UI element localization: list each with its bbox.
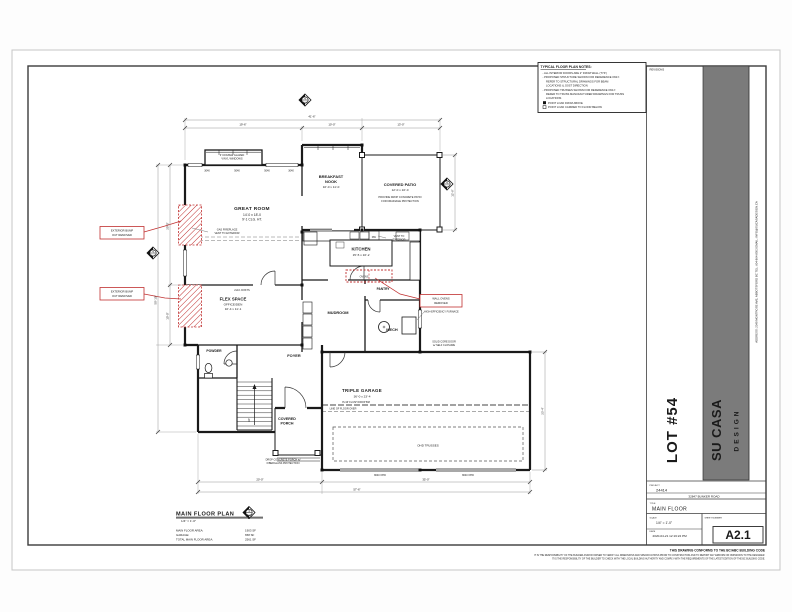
label-plan-rooms-flex_space-size: 10'-4 x 11'-1 — [225, 307, 242, 311]
label-plan-notes-floor_over: LINE OF FLOOR OVER — [330, 407, 357, 410]
label-plan-plan_title-rows-0-label: MAIN FLOOR AREA: — [176, 529, 204, 533]
label-title_block-sheet-value: A2.1 — [725, 528, 751, 542]
label-title_block-scale-value: 1/4" = 1'-0" — [656, 521, 673, 525]
label-plan-notes-fireplace_line2: VENT TO EXTERIOR — [214, 231, 239, 235]
label-plan-marker_ref-sheet: A4.0 — [247, 514, 251, 517]
label-title_block-lot_label: LOT #54 — [664, 397, 681, 463]
label-title_block-brand-sub: DESIGN — [734, 409, 741, 452]
label-plan-notes-joists: 2x10 JOISTS — [234, 288, 250, 292]
label-notes_box-lines-1: - PROPOSED STRUCTURE SHOWN FOR REFERENCE… — [543, 75, 620, 79]
label-plan-rooms-covered_porch-name_line1: COVERED — [278, 417, 296, 421]
point-load-filled-icon — [543, 101, 546, 104]
label-plan-marker_ref-sheet: A4.0 — [445, 185, 449, 188]
label-plan-rooms-stairs-label: UP — [247, 418, 251, 422]
label-plan-garage_door_tags-1: 8040 OHD — [462, 474, 474, 477]
label-title_block-project-value: 24414 — [656, 488, 668, 493]
label-plan-window_tags-0: 3040 — [204, 170, 210, 173]
bump-out-removed-hatch-1 — [179, 205, 202, 245]
label-plan-window_tags-2: 5040 — [264, 170, 270, 173]
label-title_block-conformance_note: THIS DRAWING CONFORMS TO THE BC/ABC BUIL… — [670, 549, 765, 553]
label-plan-red_annotations-ovens_line2: REMOVED — [434, 301, 448, 305]
bump-out-removed-hatch-2 — [179, 285, 202, 327]
architectural-sheet-stage: REVISIONSLOT #54SU CASADESIGNADDRESS: 23… — [0, 0, 792, 612]
label-plan-red_annotations-bump2_line1: EXTERIOR BUMP — [111, 290, 133, 294]
label-plan-notes-drop_beam: 8'x16' FLUSH DROP BM — [342, 401, 370, 404]
label-plan-rooms-breakfast_nook-size: 10'-0 x 11'-0 — [323, 185, 340, 189]
label-plan-notes-windows_line2: VINYL WINDOWS — [221, 157, 243, 161]
label-title_block-disclaimer_lines-1: IT IS THE RESPONSIBILITY OF THE BUILDER … — [552, 558, 766, 561]
label-plan-window_tags-1: 5040 — [234, 170, 240, 173]
label-plan-rooms-kitchen-name: KITCHEN — [351, 247, 370, 252]
sink-icon — [226, 360, 232, 366]
label-plan-notes-fireplace_line1: GAS FIREPLACE — [217, 228, 238, 232]
label-plan-rooms-powder-name: POWDER — [206, 349, 222, 353]
label-notes_box-title: TYPICAL FLOOR PLAN NOTES: — [541, 65, 592, 69]
label-plan-red_annotations-bump1_line2: OUT REMOVED — [112, 233, 132, 237]
label-plan-red_annotations-ovens_line1: WALL OVENS — [432, 297, 449, 301]
label-notes_box-lines-2: REFER TO STRUCTURAL DRAWINGS FOR BEAM — [546, 79, 609, 83]
label-notes_box-lines-3: LOCATIONS & JOIST DIRECTION — [546, 84, 588, 88]
floor-plan-sheet: REVISIONSLOT #54SU CASADESIGNADDRESS: 23… — [0, 0, 792, 612]
label-plan-notes-solid_core_line2: w/ SELF CLOSURE — [433, 344, 456, 347]
label-title_block-date-value: 2020-04-21 12:16:22 PM — [653, 534, 688, 538]
label-title_block-date-label: DATE — [650, 530, 656, 533]
label-plan-red_annotations-bump2_line2: OUT REMOVED — [112, 294, 132, 298]
label-plan-plan_title-scale: 1/4" = 1'-0" — [181, 519, 196, 523]
label-plan-marker_ref-sheet: A4.0 — [303, 101, 307, 104]
label-plan-marker_ref-sheet: A4.0 — [151, 254, 155, 257]
label-plan-red_annotations-bump1_line1: EXTERIOR BUMP — [111, 229, 133, 233]
label-plan-rooms-great_room-size: 14'-0 x 18'-0 — [243, 213, 261, 217]
label-plan-notes-solid_core_line1: SOLID CORE DOOR — [432, 341, 456, 344]
label-title_block-title-label: TITLE — [650, 503, 656, 505]
label-plan-rooms-pantry-name: PANTRY — [377, 287, 391, 291]
label-plan-plan_title-rows-0-value: 1903 SF — [245, 529, 256, 533]
label-plan-dimensions-top_3: 13'-0" — [397, 123, 404, 127]
label-plan-dimensions-bottom_1: 20'-0" — [256, 478, 263, 482]
label-notes_box-lines-6: LOCATIONS — [546, 96, 562, 100]
label-plan-rooms-foyer-name: FOYER — [287, 353, 301, 358]
label-plan-dimensions-top_overall: 41'-6" — [308, 115, 315, 119]
toilet-icon — [205, 363, 212, 372]
label-plan-plan_title-rows-2-value: 2561 SF — [245, 538, 256, 542]
label-plan-rooms-covered_patio-note_line1: PROVIDE DROP CONCRETE PATIO — [378, 195, 421, 199]
label-plan-plan_title-rows-1-value: 658 SF — [245, 533, 255, 537]
label-plan-dimensions-bottom_2: 35'-0" — [422, 478, 429, 482]
label-plan-rooms-mech-name: MECH — [386, 327, 398, 332]
label-title_block-site_address: 32847 BUNKER ROAD — [688, 495, 720, 499]
label-plan-dimensions-left_overall: 50'-10" — [154, 296, 158, 305]
label-plan-rooms-covered_patio-name: COVERED PATIO — [384, 182, 417, 187]
label-plan-notes-ohd_trusses: OHD TRUSSES — [417, 444, 439, 448]
label-plan-rooms-flex_space-name: FLEX SPACE — [220, 297, 247, 302]
label-plan-rooms-covered_porch-name_line2: PORCH — [281, 422, 294, 426]
label-plan-notes-vent_line2: EXTERIOR — [393, 238, 406, 241]
label-plan-notes-windows_line1: 3' DOUBLE GLAZED — [220, 153, 245, 157]
label-notes_box-lines-4: - PROPOSED TRUSSES SHOWN FOR REFERENCE O… — [543, 88, 617, 92]
label-plan-notes-furnace: HIGH-EFFICIENCY FURNACE — [424, 311, 459, 314]
label-plan-notes-porch_conc_line1: DROP CONCRETE PORCH w/ — [266, 459, 301, 462]
label-notes_box-lines-7: POINT LOAD FROM ABOVE — [548, 101, 583, 105]
label-plan-plan_title-rows-2-label: TOTAL MAIN FLOOR AREA: — [176, 538, 213, 542]
point-load-hollow-icon — [543, 106, 546, 109]
label-plan-rooms-mudroom-name: MUDROOM — [328, 310, 349, 315]
label-plan-dimensions-right_patio: 12'-6" — [451, 189, 455, 196]
furnace-icon — [402, 317, 416, 334]
label-plan-rooms-triple_garage-name: TRIPLE GARAGE — [342, 388, 382, 393]
label-plan-plan_title-heading: MAIN FLOOR PLAN — [176, 512, 234, 518]
label-plan-rooms-breakfast_nook-name_line2: NOOK — [325, 179, 337, 184]
label-title_block-scale-label: SCALE — [650, 517, 658, 520]
label-plan-dimensions-top_2: 10'-0" — [328, 123, 335, 127]
bump-out-callout-2 — [100, 288, 144, 301]
label-plan-red_annotations-ovens_tag: OVENS — [360, 276, 369, 279]
label-title_block-brand-contact: ADDRESS: 2349 MONTROSE AVE, ABBOTSFORD B… — [755, 201, 759, 343]
label-plan-dimensions-top_1: 19'-6" — [239, 123, 246, 127]
label-title_block-title-value: MAIN FLOOR — [652, 507, 687, 513]
label-plan-plan_title-rows-1-label: GARAGE: — [176, 533, 189, 537]
label-plan-garage_door_tags-0: 8040 OHD — [374, 474, 386, 477]
label-plan-rooms-covered_patio-note_line2: FOR DRAINAGE PROTECTION — [381, 199, 419, 203]
label-title_block-brand-name: SU CASA — [709, 399, 724, 461]
label-plan-dimensions-left_1: 20'-0" — [166, 222, 170, 229]
label-title_block-disclaimer_lines-0: IT IS THE RESPONSIBILITY OF THE BUILDER … — [534, 554, 765, 557]
label-plan-notes-dw: DW — [372, 236, 377, 239]
label-plan-dimensions-right_garage: 23'-4" — [541, 407, 545, 414]
label-plan-rooms-triple_garage-size: 36'-0 x 23'-4 — [354, 394, 371, 398]
label-plan-dimensions-bottom_overall: 57'-6" — [353, 488, 360, 492]
label-title_block-sheet-label: SHEET NUMBER — [705, 518, 723, 520]
label-plan-rooms-covered_patio-size: 12'-0 x 10'-0 — [392, 188, 409, 192]
label-notes_box-lines-5: REFER TO TRUSS MANUFACTURER DRAWINGS FOR… — [546, 92, 624, 96]
wall-ovens-callout — [420, 295, 462, 308]
bump-out-callout-1 — [100, 227, 144, 240]
label-title_block-revisions_label: REVISIONS — [650, 68, 665, 72]
label-plan-rooms-great_room-name: GREAT ROOM — [234, 206, 270, 212]
label-plan-rooms-great_room-ceiling: 9'-1 CLG. HT. — [242, 218, 262, 222]
label-plan-dimensions-left_2: 10'-0" — [166, 312, 170, 319]
label-plan-rooms-kitchen-size: 15'-5 x 10'-2 — [353, 253, 370, 257]
label-notes_box-lines-8: POINT LOAD CARRIED TO FLOOR BELOW — [548, 105, 602, 109]
label-notes_box-lines-0: - ALL INTERIOR DOORS ARE 2" FROM WALL (T… — [543, 71, 607, 75]
label-plan-rooms-flex_space-sub: OFFICE/DEN — [224, 303, 243, 307]
label-plan-notes-porch_conc_line2: FIBERGLASS PROTECTION — [267, 462, 300, 465]
label-plan-window_tags-3: 3040 — [288, 170, 294, 173]
